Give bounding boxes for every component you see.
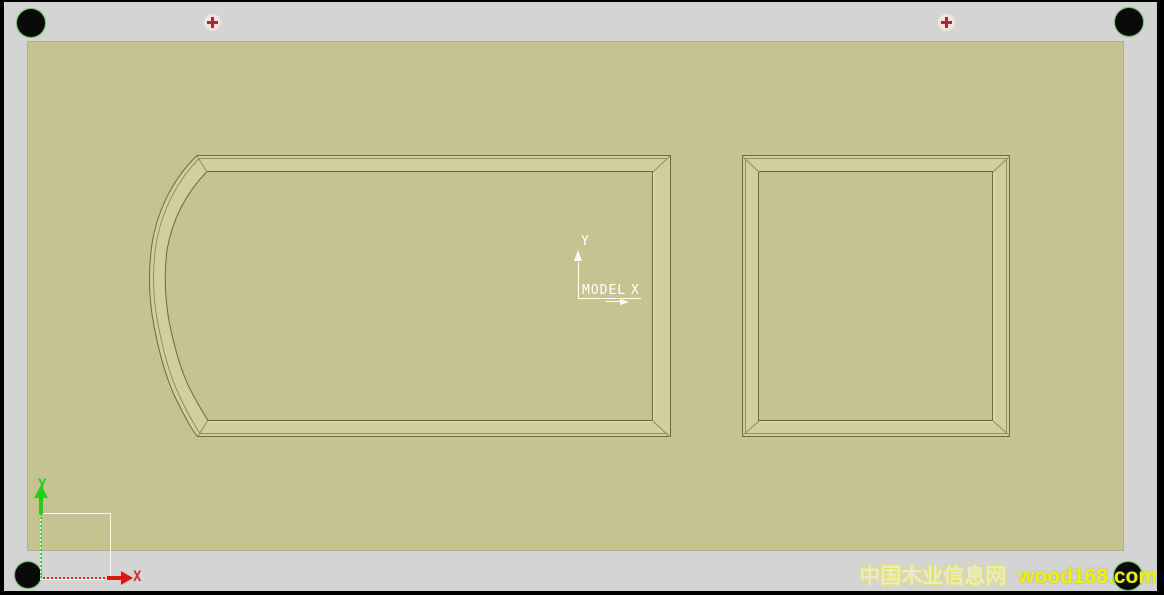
registration-dot-top-left	[17, 9, 45, 37]
origin-x-label: X	[133, 569, 141, 585]
model-axis-x-arrow-tail	[606, 301, 621, 302]
model-axis-y-line	[578, 262, 579, 299]
left-panel-inner-field[interactable]	[165, 172, 652, 421]
watermark-domain: wood168.com	[1018, 565, 1157, 588]
cad-viewport: { "colors": { "page-border": "#000000", …	[0, 0, 1164, 595]
model-axis-x-label: X	[631, 284, 640, 297]
origin-x-arrow-icon	[121, 571, 133, 585]
cross-marker-icon-right	[938, 14, 955, 31]
door-panel-right-shape[interactable]	[735, 148, 1017, 444]
registration-dot-top-right	[1115, 8, 1143, 36]
right-panel-inner-field[interactable]	[759, 172, 993, 421]
model-axis-x-line	[578, 298, 641, 299]
origin-y-dotted-line	[40, 514, 42, 578]
watermark: 中国木业信息网 wood168.com	[859, 560, 1157, 588]
watermark-site-name: 中国木业信息网	[859, 565, 1006, 588]
model-axis-x-arrow-icon	[620, 299, 629, 305]
origin-x-arrow-shaft	[107, 576, 122, 580]
origin-bounds-box	[40, 513, 111, 580]
model-axis-label: MODEL	[582, 284, 626, 297]
origin-x-dotted-line	[43, 577, 109, 579]
cross-marker-icon-left	[204, 14, 221, 31]
origin-y-arrow-shaft	[39, 497, 43, 514]
model-axis-y-label: Y	[581, 235, 590, 248]
model-axis-y-arrow-icon	[574, 250, 582, 261]
registration-dot-bottom-left	[15, 562, 41, 588]
